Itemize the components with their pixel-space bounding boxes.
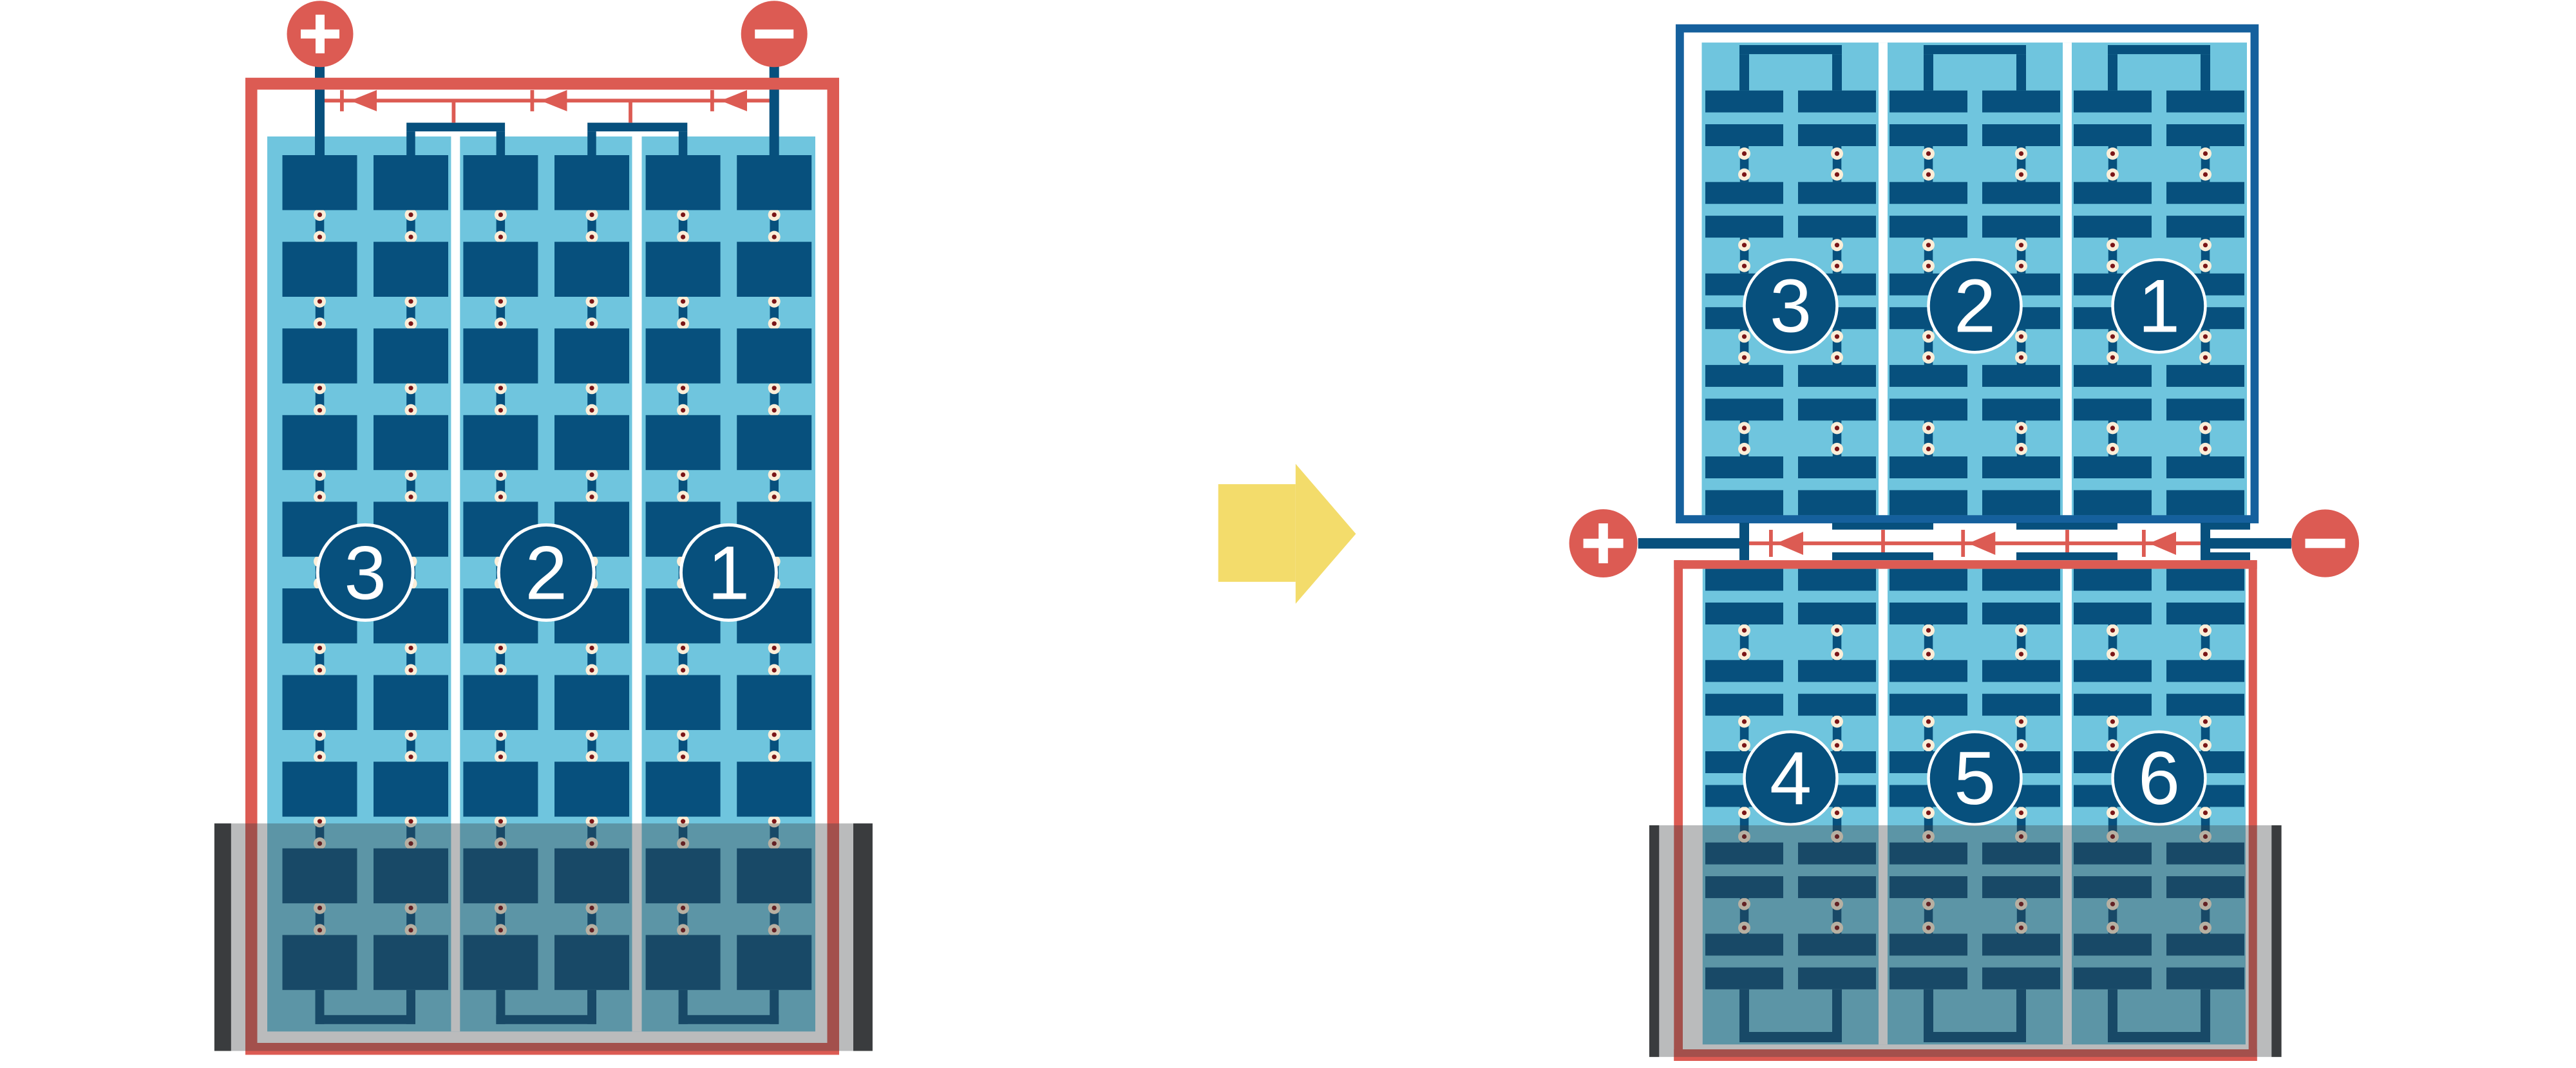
svg-text:4: 4	[1770, 736, 1812, 820]
svg-text:1: 1	[708, 530, 750, 615]
svg-text:2: 2	[525, 530, 567, 615]
svg-text:1: 1	[2138, 264, 2180, 348]
svg-text:3: 3	[1770, 264, 1812, 348]
svg-text:3: 3	[344, 530, 386, 615]
svg-text:6: 6	[2138, 736, 2180, 820]
svg-text:2: 2	[1954, 264, 1996, 348]
svg-text:5: 5	[1954, 736, 1996, 820]
